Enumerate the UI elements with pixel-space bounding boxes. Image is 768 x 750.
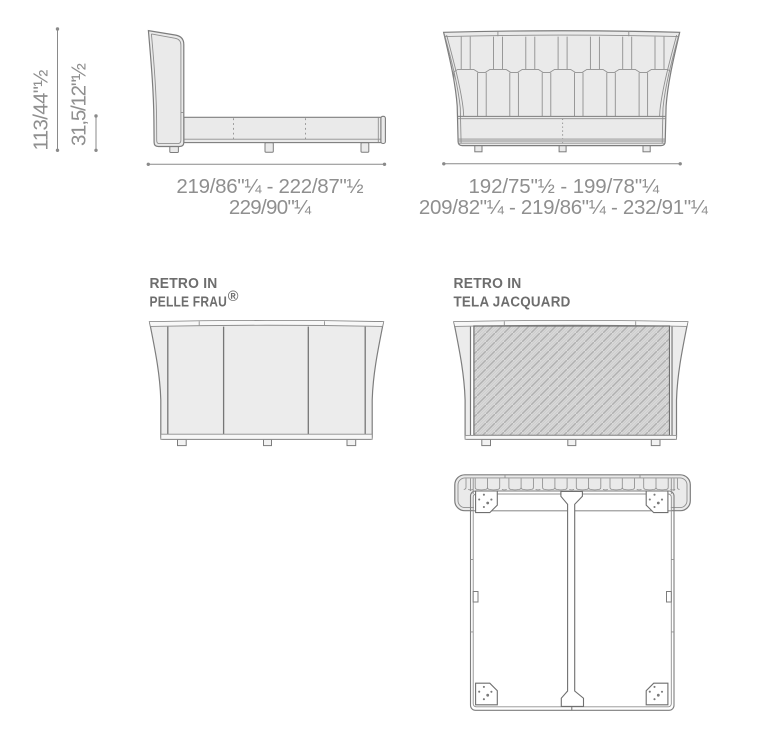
svg-text:192/75"½ - 199/78"¼: 192/75"½ - 199/78"¼ xyxy=(469,175,660,198)
svg-text:113/44"½: 113/44"½ xyxy=(30,70,53,151)
svg-text:RETRO IN: RETRO IN xyxy=(454,276,522,292)
svg-text:209/82"¼ - 219/86"¼ - 232/91"¼: 209/82"¼ - 219/86"¼ - 232/91"¼ xyxy=(419,196,709,219)
svg-text:229/90"¼: 229/90"¼ xyxy=(229,196,312,219)
svg-text:®: ® xyxy=(228,289,239,305)
svg-text:PELLE FRAU: PELLE FRAU xyxy=(150,295,228,311)
svg-text:31,5/12"½: 31,5/12"½ xyxy=(68,63,91,146)
svg-text:219/86"¼ - 222/87"½: 219/86"¼ - 222/87"½ xyxy=(176,175,363,198)
svg-text:RETRO IN: RETRO IN xyxy=(150,276,218,292)
svg-text:TELA JACQUARD: TELA JACQUARD xyxy=(454,295,571,311)
